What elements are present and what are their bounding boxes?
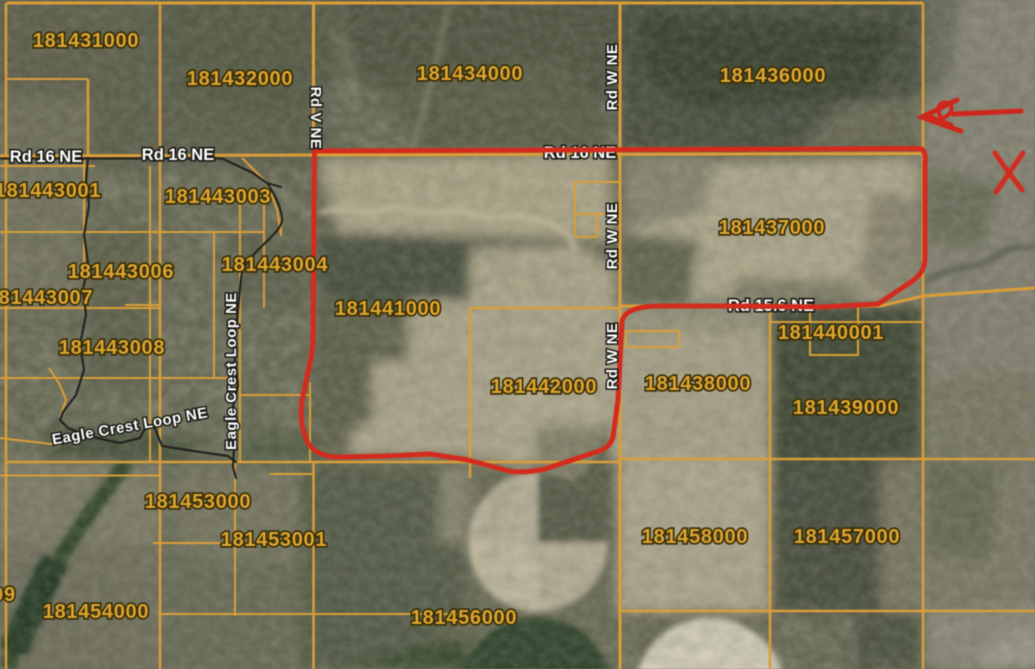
svg-text:181454000: 181454000 xyxy=(43,601,149,623)
svg-text:Rd 16 NE: Rd 16 NE xyxy=(10,148,82,166)
svg-text:181439000: 181439000 xyxy=(793,397,899,419)
svg-text:181437000: 181437000 xyxy=(719,217,825,239)
svg-text:181441000: 181441000 xyxy=(335,298,441,320)
svg-text:181443003: 181443003 xyxy=(165,186,271,208)
svg-text:Rd W NE: Rd W NE xyxy=(604,323,621,390)
svg-text:181443008: 181443008 xyxy=(59,337,165,359)
svg-text:181431000: 181431000 xyxy=(33,30,139,52)
svg-text:181440001: 181440001 xyxy=(778,322,884,344)
svg-text:181443001: 181443001 xyxy=(0,180,101,202)
svg-text:181434000: 181434000 xyxy=(417,63,523,85)
svg-text:181457000: 181457000 xyxy=(794,526,900,548)
svg-text:181436000: 181436000 xyxy=(720,65,826,87)
svg-text:181443007: 181443007 xyxy=(0,287,93,309)
svg-text:09: 09 xyxy=(0,584,16,606)
svg-text:Rd W NE: Rd W NE xyxy=(604,203,621,270)
svg-text:Eagle Crest Loop NE: Eagle Crest Loop NE xyxy=(223,292,240,450)
svg-text:Rd V NE: Rd V NE xyxy=(307,87,324,150)
svg-text:181456000: 181456000 xyxy=(411,607,517,629)
svg-text:181438000: 181438000 xyxy=(645,373,751,395)
svg-text:181458000: 181458000 xyxy=(642,526,748,548)
svg-text:181443006: 181443006 xyxy=(68,261,174,283)
svg-text:181442000: 181442000 xyxy=(491,376,597,398)
svg-text:181443004: 181443004 xyxy=(222,254,329,276)
svg-text:181453000: 181453000 xyxy=(145,491,251,513)
svg-text:Rd 16 NE: Rd 16 NE xyxy=(544,144,616,162)
svg-text:181432000: 181432000 xyxy=(187,68,293,90)
svg-text:Rd W NE: Rd W NE xyxy=(604,44,621,111)
svg-text:181453001: 181453001 xyxy=(221,529,327,551)
svg-text:Rd 16 NE: Rd 16 NE xyxy=(142,146,214,164)
